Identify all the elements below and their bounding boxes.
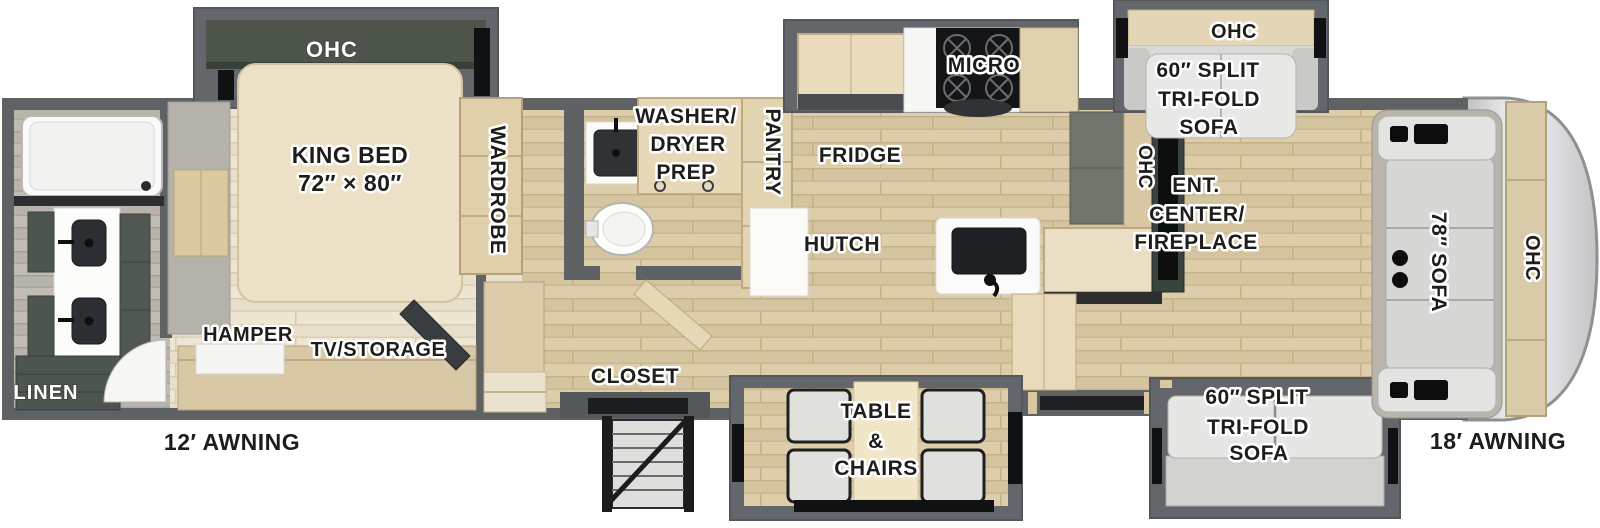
faucet-icon xyxy=(85,317,94,326)
label-awning-right: 18′ AWNING xyxy=(1430,428,1566,454)
cupholder-icon xyxy=(1392,272,1408,288)
slide-window-icon xyxy=(1008,412,1022,484)
label-washer-1: WASHER/ xyxy=(635,105,737,128)
label-awning-left: 12′ AWNING xyxy=(164,429,300,455)
cupholder-icon xyxy=(1390,126,1408,142)
label-sofa-top-2: TRI-FOLD xyxy=(1158,88,1260,111)
range-hood xyxy=(944,99,1012,117)
label-table: TABLE xyxy=(841,400,912,423)
closet-cabinet xyxy=(484,282,544,372)
slide-window-icon xyxy=(1314,18,1326,58)
mid-bath-bottom-wall-a xyxy=(564,266,600,280)
label-sofa-bottom-3: SOFA xyxy=(1229,442,1288,465)
slide-window-icon xyxy=(474,28,490,96)
top-wall-4 xyxy=(1324,98,1468,110)
label-king-bed-2: 72″ × 80″ xyxy=(298,170,402,196)
shower-ledge xyxy=(14,196,164,206)
label-ent-2: CENTER/ xyxy=(1149,203,1245,226)
label-hamper: HAMPER xyxy=(203,324,293,346)
label-ohc-sofa-top: OHC xyxy=(1211,21,1257,43)
label-washer-3: PREP xyxy=(656,161,715,184)
faucet-icon xyxy=(85,239,94,248)
label-ohc-front: OHC xyxy=(1521,235,1543,281)
label-ohc-bedroom: OHC xyxy=(306,37,358,62)
label-sofa-78: 78″ SOFA xyxy=(1427,212,1450,312)
main-entry-jamb-left xyxy=(1028,392,1037,414)
label-sofa-top-3: SOFA xyxy=(1179,116,1238,139)
shower-drain-icon xyxy=(141,181,151,191)
shower-pan xyxy=(30,122,154,190)
label-sofa-bottom-2: TRI-FOLD xyxy=(1207,416,1309,439)
medicine-cabinet xyxy=(28,212,54,272)
label-sofa-top-1: 60″ SPLIT xyxy=(1156,59,1259,82)
faucet-icon xyxy=(58,318,74,322)
slide-window-icon xyxy=(1388,428,1398,484)
faucet-icon xyxy=(614,118,618,132)
label-closet: CLOSET xyxy=(591,365,679,388)
slide-window-icon xyxy=(1152,428,1162,484)
mid-bath-bottom-wall-b xyxy=(636,266,756,280)
chair-icon xyxy=(922,450,984,502)
mid-bath-left-wall xyxy=(564,100,584,280)
slide-latch xyxy=(1160,380,1172,388)
step-rail xyxy=(684,416,694,512)
front-lounge xyxy=(1372,102,1546,418)
faucet-icon xyxy=(58,240,74,244)
label-micro: MICRO xyxy=(948,54,1021,77)
slide-window-icon xyxy=(1116,18,1128,58)
floorplan-canvas: OHC KING BED 72″ × 80″ WARDROBE HAMPER T… xyxy=(0,0,1600,528)
rear-wall xyxy=(2,98,14,420)
fifth-wheel-floorplan: OHC KING BED 72″ × 80″ WARDROBE HAMPER T… xyxy=(0,0,1600,528)
label-chairs: CHAIRS xyxy=(834,457,918,480)
label-linen: LINEN xyxy=(14,382,79,404)
slide-window-icon xyxy=(794,500,994,512)
hutch-counter xyxy=(750,208,808,296)
label-king-bed-1: KING BED xyxy=(292,142,408,168)
cupholder-icon xyxy=(1390,382,1408,398)
rear-bathroom xyxy=(14,116,166,410)
chair-icon xyxy=(922,390,984,442)
fridge-base xyxy=(798,94,904,110)
label-pantry: PANTRY xyxy=(761,109,784,196)
label-ent-3: FIREPLACE xyxy=(1134,231,1258,254)
slide-window-icon xyxy=(218,70,234,100)
console-tray-icon xyxy=(1414,380,1448,400)
slide-window-icon xyxy=(732,424,744,482)
cupholder-icon xyxy=(1392,250,1408,266)
label-ent-1: ENT. xyxy=(1172,174,1220,197)
entry-steps-icon xyxy=(602,416,694,512)
label-washer-2: DRYER xyxy=(650,133,725,156)
bath-cabinet xyxy=(120,214,150,358)
label-sofa-bottom-1: 60″ SPLIT xyxy=(1205,386,1308,409)
console-tray-icon xyxy=(1414,124,1448,144)
main-entry-door-opening xyxy=(1040,396,1144,410)
label-wardrobe: WARDROBE xyxy=(486,126,509,255)
label-hutch: HUTCH xyxy=(804,233,880,256)
toilet-bowl xyxy=(603,212,645,246)
toilet-tank xyxy=(586,221,598,237)
medicine-cabinet xyxy=(28,296,54,356)
island-sink-icon xyxy=(952,228,1026,274)
rear-entry-threshold xyxy=(588,398,688,414)
label-tv-storage: TV/STORAGE xyxy=(311,339,446,361)
hamper-bin xyxy=(196,344,284,374)
label-ohc-kitchen: OHC xyxy=(1134,145,1155,189)
label-amp: & xyxy=(868,430,884,453)
micro-cabinet xyxy=(1020,28,1078,112)
faucet-icon xyxy=(612,149,620,157)
label-fridge: FRIDGE xyxy=(819,144,901,167)
